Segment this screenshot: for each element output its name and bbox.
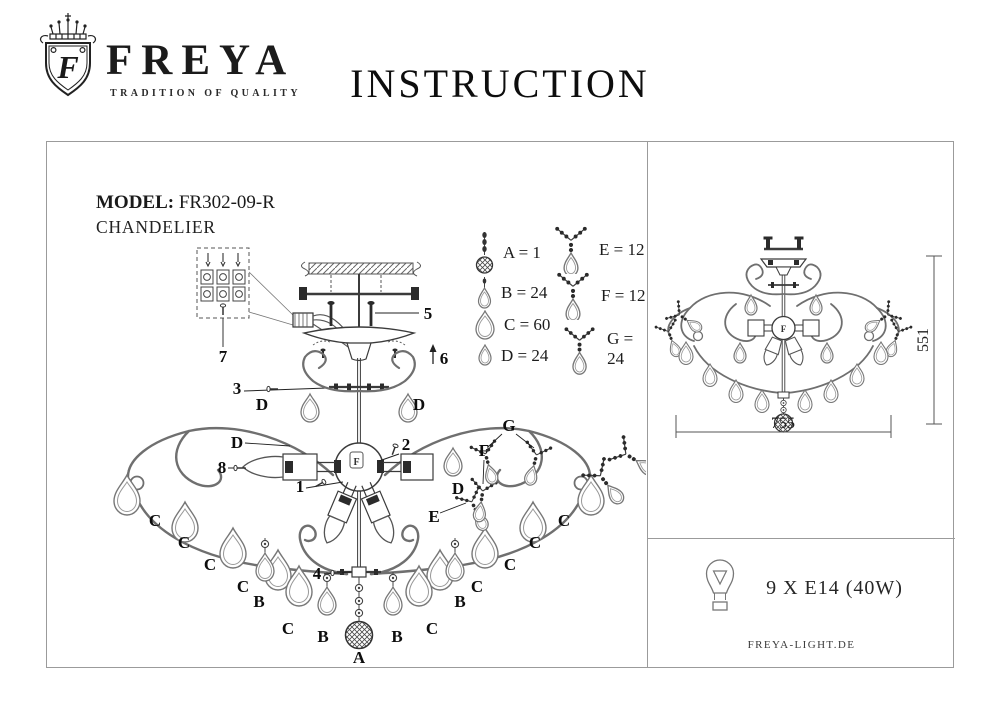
mounting-screws (327, 301, 374, 326)
legend-item-B: B = 24 (477, 276, 547, 310)
crystal-label-B: B (253, 592, 264, 611)
candle-bulb (319, 516, 345, 547)
legend-item-F: F = 12 (554, 272, 646, 320)
part-label-7: 7 (219, 347, 228, 366)
part-label-4: 4 (313, 564, 322, 583)
crystal-label-C: C (178, 533, 190, 552)
crown-icon (41, 13, 96, 43)
crystal-label-C: C (282, 619, 294, 638)
small-drop-icon (477, 276, 492, 310)
hub-brand-mark: F (781, 324, 787, 334)
crystal-label-G: G (502, 416, 515, 435)
lamp-hub: F (748, 317, 819, 368)
legend-item-A: A = 1 (475, 230, 541, 275)
legend-text: C = 60 (504, 315, 550, 335)
crystal-label-C: C (504, 555, 516, 574)
legend-text: B = 24 (501, 283, 547, 303)
part-label-1: 1 (296, 477, 305, 496)
crystal-label-B: B (317, 627, 328, 646)
canopy (304, 327, 414, 361)
mounting-bracket (299, 274, 419, 334)
crystal-label-C: C (471, 577, 483, 596)
branch-drop-icon (554, 272, 592, 320)
candle-bulb (373, 516, 399, 547)
dimensions-pane: F (648, 142, 955, 667)
crystal-label-D: D (452, 479, 464, 498)
branch-drop-icon (552, 226, 590, 274)
crystal-drop-D (301, 394, 319, 422)
bulb-icon (700, 557, 740, 619)
left-arm-socket (243, 454, 335, 480)
legend-item-E: E = 12 (552, 226, 644, 274)
legend-item-G: G = 24 (561, 322, 647, 376)
website-text: FREYA-LIGHT.DE (648, 639, 955, 651)
lamp-hub: F (334, 443, 384, 491)
crystal-label-A: A (353, 648, 366, 667)
legend-text: G = 24 (607, 329, 647, 369)
ceiling-mount (761, 237, 806, 276)
part-label-3: 3 (233, 379, 242, 398)
dimensions-drawing: F (648, 142, 953, 537)
dimensions-drawing-box: F (648, 142, 955, 539)
part-label-2: 2 (402, 435, 411, 454)
assembly-diagram: 7 (47, 142, 646, 667)
ball-pendant-icon (475, 230, 494, 275)
crystal-label-F: F (479, 441, 489, 460)
crystal-label-E: E (428, 507, 439, 526)
legend-item-C: C = 60 (475, 310, 550, 340)
legend-text: F = 12 (601, 286, 646, 306)
crystal-label-C: C (204, 555, 216, 574)
crystal-label-C: C (529, 533, 541, 552)
drop-icon (475, 310, 495, 340)
crystal-label-C: C (426, 619, 438, 638)
crystal-label-C: C (237, 577, 249, 596)
legend-text: E = 12 (599, 240, 644, 260)
terminal-detail-box (197, 248, 293, 347)
instruction-panel: MODEL: FR302-09-R CHANDELIER (46, 141, 954, 668)
mini-drop-icon (478, 344, 492, 367)
crystal-label-D: D (413, 395, 425, 414)
crystal-label-D: D (256, 395, 268, 414)
crystal-label-B: B (454, 592, 465, 611)
page-title: INSTRUCTION (0, 60, 1000, 107)
legend-text: A = 1 (503, 243, 541, 263)
legend-text: D = 24 (501, 346, 548, 366)
faceted-ball (346, 622, 373, 649)
part-label-5: 5 (424, 304, 433, 323)
crystal-label-C: C (558, 511, 570, 530)
spec-box: 9 X E14 (40W) FREYA-LIGHT.DE (648, 539, 955, 667)
crystal-label-C: C (149, 511, 161, 530)
candle-bulb (243, 456, 283, 477)
legend-item-D: D = 24 (478, 344, 548, 367)
part-label-8: 8 (218, 458, 227, 477)
assembly-pane: MODEL: FR302-09-R CHANDELIER (47, 142, 648, 667)
width-dimension-value: 755 (771, 415, 795, 432)
height-dimension-value: 551 (915, 328, 932, 352)
crystal-label-B: B (391, 627, 402, 646)
instruction-sheet: F FREYA TRADITION OF QUALITY INSTRUCTION… (0, 0, 1000, 706)
bead-chain (355, 577, 362, 621)
lower-right-socket (357, 480, 400, 547)
branch-drop-icon (561, 322, 598, 376)
crystal-label-D: D (231, 433, 243, 452)
hub-brand-mark: F (353, 457, 359, 468)
lamp-spec: 9 X E14 (40W) (766, 577, 903, 600)
right-arm-socket (383, 454, 433, 480)
ceiling-plate (302, 262, 421, 276)
lower-left-socket (318, 480, 361, 547)
part-label-6: 6 (440, 349, 449, 368)
bottom-crossbar (324, 567, 381, 577)
crystal-drop-D (444, 448, 462, 476)
up-arrow-icon (430, 344, 437, 364)
